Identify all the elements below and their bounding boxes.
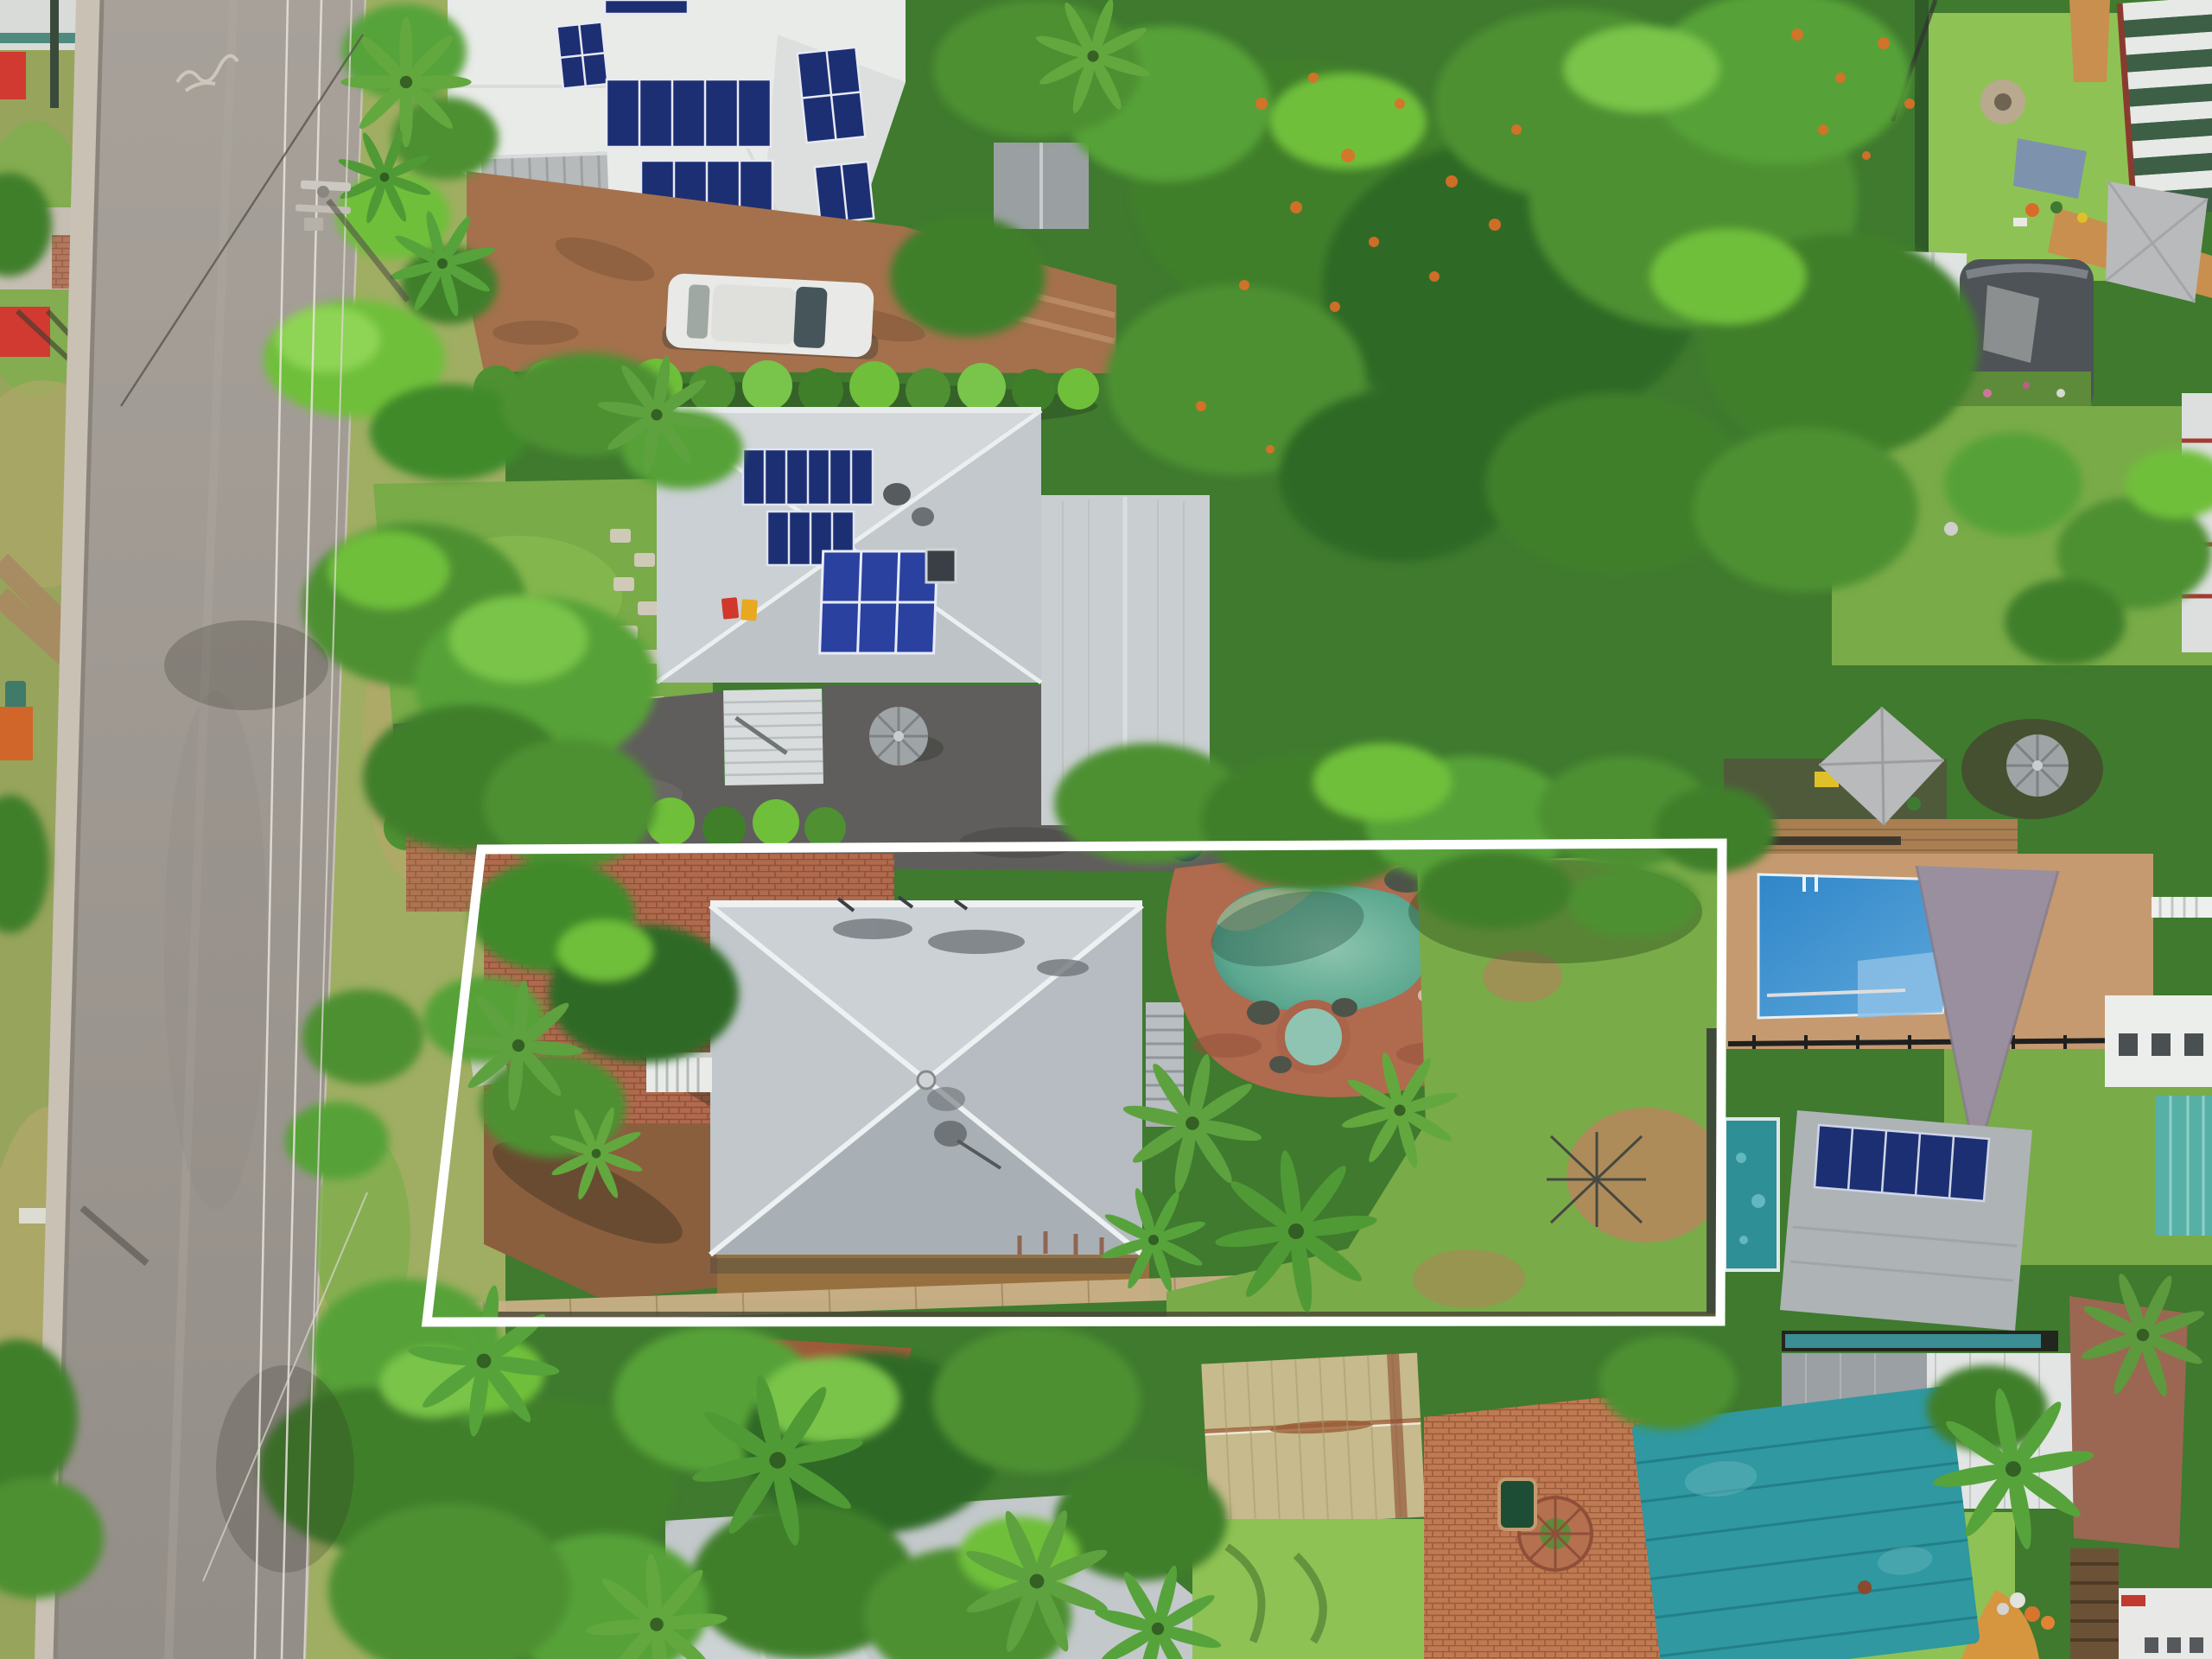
house-shadow: [710, 1258, 1142, 1274]
white-building-mid: [2105, 995, 2212, 1087]
gutter: [657, 407, 1041, 413]
wheelie-bin-yellow: [741, 599, 758, 620]
car-roof: [710, 283, 796, 345]
satellite-dish: [912, 507, 934, 526]
white-garden-shed: [723, 689, 823, 785]
park-fence: [50, 0, 59, 108]
white-balustrade: [2152, 897, 2212, 918]
solar-shed: [1780, 1110, 2032, 1331]
wheelie-bin-red: [721, 597, 739, 620]
dirt-patch-bottom: [1413, 1249, 1525, 1308]
solar-array: [607, 79, 771, 147]
water-strip: [1785, 1334, 2041, 1348]
dirt-path-top: [2069, 0, 2110, 82]
roof-finial: [918, 1071, 935, 1089]
satellite-dish: [883, 483, 911, 505]
bright-tree-highlight: [276, 307, 380, 372]
park-structure-trim: [0, 33, 85, 43]
lap-pool: [1725, 1119, 1778, 1270]
clothesline: [1547, 1132, 1646, 1227]
car-windshield: [793, 287, 828, 349]
playground-equipment-top: [0, 52, 26, 99]
white-car: [662, 273, 881, 360]
white-cottage: [2108, 1588, 2212, 1659]
shed-front-lawn: [1192, 1519, 1426, 1659]
subject-gutter: [710, 900, 1142, 907]
finial-shadow: [927, 1087, 965, 1111]
road-patch: [164, 691, 268, 1210]
solar-row: [1815, 1125, 1989, 1201]
water-tank-right: [2006, 734, 2069, 797]
palm-tree: [340, 16, 471, 147]
transformer-box: [304, 218, 323, 231]
car-rear-glass: [687, 284, 710, 339]
solar-array-row6: [743, 449, 873, 505]
tan-shed: [1201, 1353, 1426, 1529]
garden-pond: [1499, 1479, 1535, 1529]
bird-bath-bowl: [1994, 93, 2012, 111]
deck-pergola: [2070, 1548, 2119, 1659]
aerial-photo: [0, 0, 2212, 1659]
solar-array-grid6: [820, 551, 938, 653]
plastic-sheet: [1983, 285, 2039, 363]
skylight: [926, 550, 956, 582]
orange-equipment: [0, 707, 33, 760]
subject-house: [646, 897, 1184, 1274]
aerial-photo-stage: [0, 0, 2212, 1659]
red-vent: [2121, 1595, 2145, 1606]
solar-strip: [605, 0, 688, 14]
